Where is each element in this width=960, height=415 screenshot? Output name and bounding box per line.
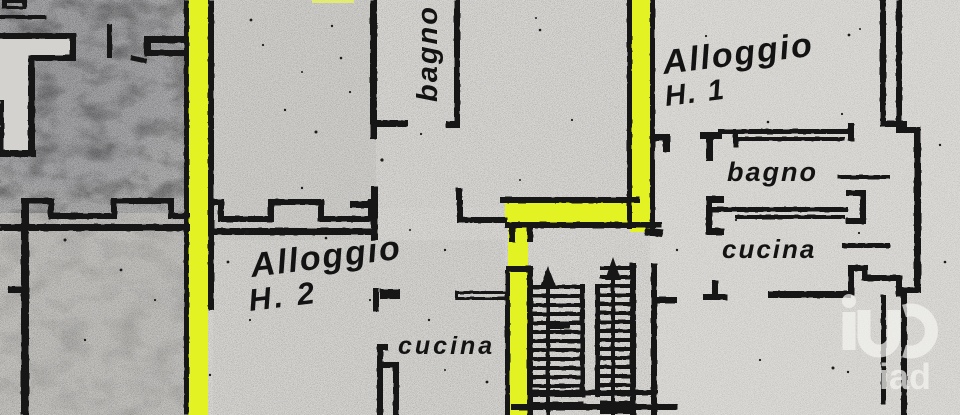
svg-text:cucina: cucina <box>722 234 816 264</box>
svg-text:bagno: bagno <box>412 5 444 102</box>
svg-text:bagno: bagno <box>727 157 818 187</box>
svg-text:iad: iad <box>879 356 931 397</box>
svg-text:cucina: cucina <box>398 332 495 360</box>
